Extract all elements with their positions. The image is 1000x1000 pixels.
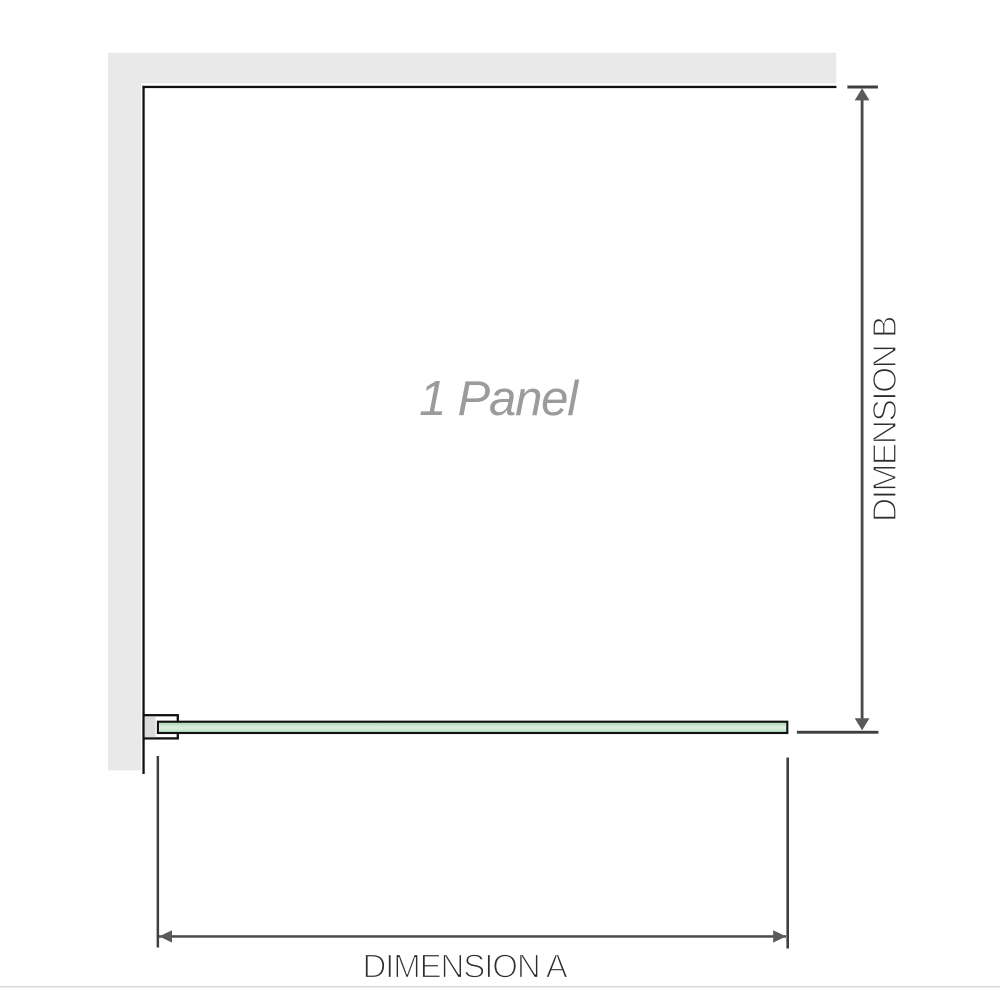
svg-text:DIMENSION A: DIMENSION A [362,948,567,985]
svg-text:DIMENSION B: DIMENSION B [867,317,904,522]
svg-text:1 Panel: 1 Panel [419,372,579,426]
